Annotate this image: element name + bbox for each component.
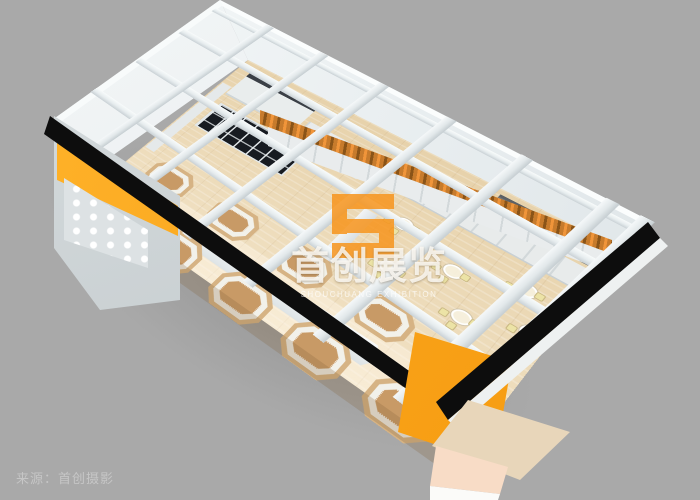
ceiling-beam — [80, 24, 274, 158]
ceiling-beam — [212, 8, 655, 241]
render-image: 首创展览 SHOUCHUANG EXHIBITION 来源：首创摄影 — [0, 0, 700, 500]
source-caption: 来源：首创摄影 — [16, 468, 114, 487]
